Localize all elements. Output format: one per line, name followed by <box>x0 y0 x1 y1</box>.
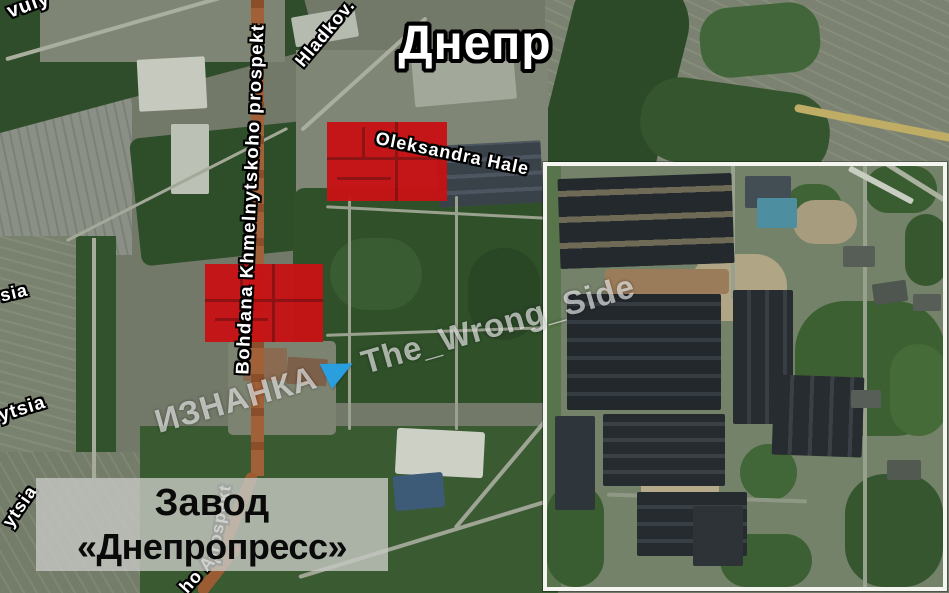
terrain-patch <box>603 414 725 486</box>
terrain-patch <box>555 416 595 510</box>
red-marked-zone-2 <box>205 264 323 342</box>
inset-satellite-terrain <box>547 166 943 587</box>
factory-callout: Завод «Днепропресс» <box>36 478 388 571</box>
terrain-patch <box>395 428 485 479</box>
terrain-patch <box>851 390 881 408</box>
terrain-patch <box>793 200 857 244</box>
terrain-patch <box>137 56 208 111</box>
terrain-patch <box>890 344 947 436</box>
terrain-patch <box>845 474 943 587</box>
terrain-patch <box>348 196 351 430</box>
terrain-patch <box>92 238 96 478</box>
terrain-patch <box>887 460 921 480</box>
terrain-patch <box>0 236 76 484</box>
terrain-patch <box>697 0 823 80</box>
paper-plane-icon <box>320 351 359 389</box>
factory-closeup-inset <box>543 162 947 591</box>
terrain-patch <box>905 214 947 286</box>
terrain-patch <box>913 294 941 311</box>
terrain-patch <box>863 166 867 587</box>
factory-callout-line1: Завод <box>155 481 270 526</box>
terrain-patch <box>557 173 734 269</box>
terrain-patch <box>330 238 422 310</box>
terrain-patch <box>757 198 797 228</box>
terrain-patch <box>772 374 865 457</box>
terrain-patch <box>693 506 743 566</box>
city-title: Днепр <box>330 16 620 71</box>
terrain-patch <box>843 246 875 267</box>
annotated-satellite-map: vuly Hladkov. Bohdana Khmelnytskoho pros… <box>0 0 949 593</box>
factory-callout-line2: «Днепропресс» <box>77 526 347 568</box>
terrain-patch <box>393 472 446 511</box>
